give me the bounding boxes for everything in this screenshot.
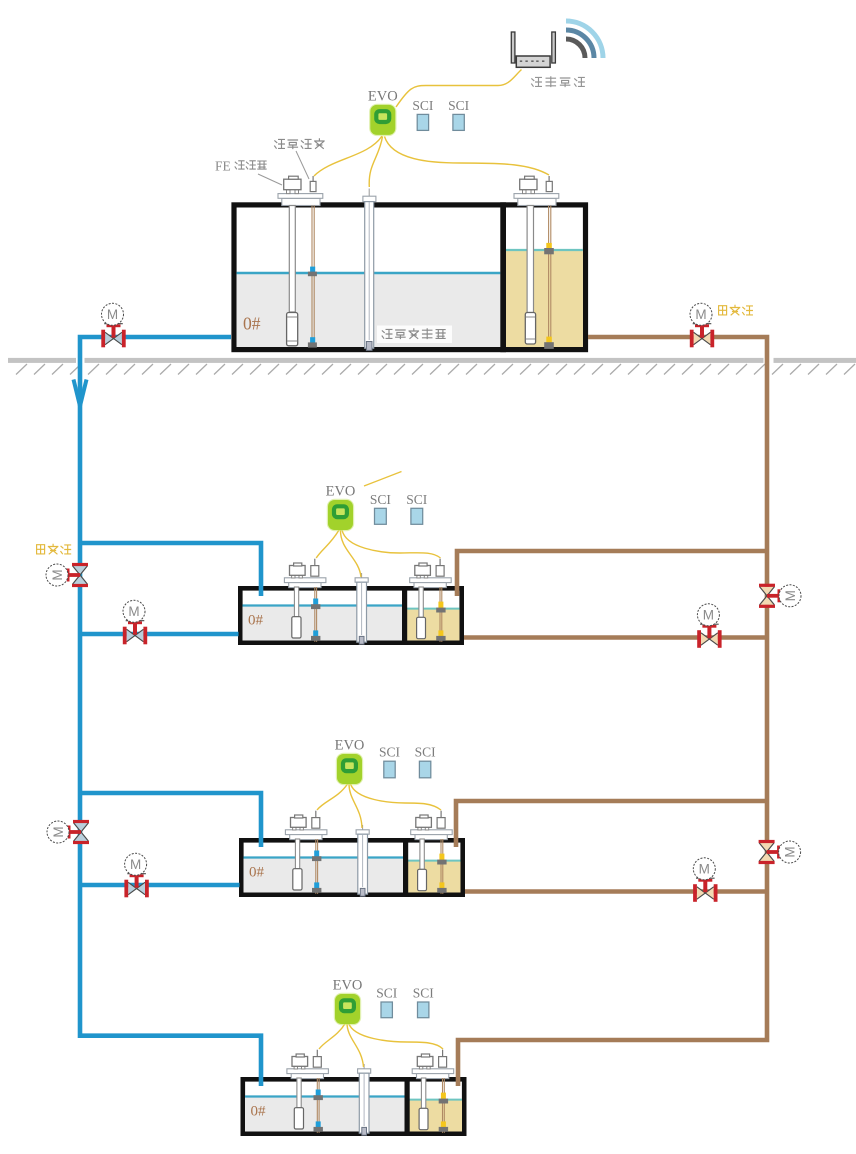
svg-text:0#: 0# (251, 1104, 267, 1120)
svg-text:M: M (703, 608, 714, 623)
svg-text:SCI: SCI (413, 986, 435, 1001)
svg-text:SCI: SCI (376, 986, 398, 1001)
svg-text:EVO: EVO (333, 978, 363, 994)
svg-text:0#: 0# (249, 865, 265, 881)
svg-text:M: M (51, 826, 66, 837)
svg-text:M: M (782, 846, 797, 857)
svg-text:M: M (107, 307, 118, 322)
svg-text:SCI: SCI (406, 492, 428, 507)
svg-text:SCI: SCI (415, 745, 437, 760)
svg-text:EVO: EVO (326, 484, 356, 500)
svg-text:M: M (50, 569, 65, 580)
svg-text:M: M (695, 307, 706, 322)
svg-text:SCI: SCI (448, 98, 470, 113)
svg-text:EVO: EVO (368, 88, 398, 104)
svg-text:0#: 0# (248, 613, 264, 629)
svg-text:SCI: SCI (412, 98, 434, 113)
svg-text:M: M (128, 604, 139, 619)
svg-text:M: M (699, 862, 710, 877)
svg-text:SCI: SCI (370, 492, 392, 507)
svg-text:FE: FE (215, 159, 231, 174)
svg-text:SCI: SCI (379, 745, 401, 760)
svg-text:M: M (130, 857, 141, 872)
svg-text:EVO: EVO (335, 738, 365, 754)
svg-text:0#: 0# (243, 314, 261, 334)
svg-text:M: M (783, 590, 798, 601)
